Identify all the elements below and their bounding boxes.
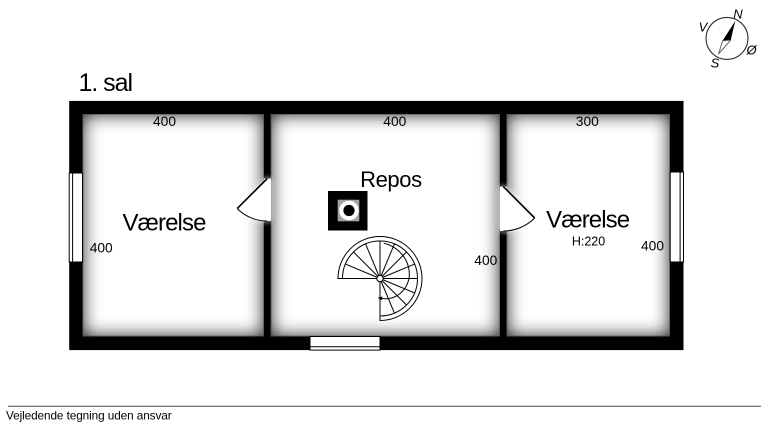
svg-text:400: 400 xyxy=(474,253,497,268)
svg-text:Ø: Ø xyxy=(745,43,757,58)
svg-text:400: 400 xyxy=(153,114,176,129)
svg-text:V: V xyxy=(699,20,709,35)
svg-text:Repos: Repos xyxy=(360,167,422,192)
svg-text:S: S xyxy=(711,56,720,71)
svg-text:400: 400 xyxy=(641,239,664,254)
svg-text:1. sal: 1. sal xyxy=(79,69,132,97)
svg-text:300: 300 xyxy=(576,114,599,129)
svg-text:Værelse: Værelse xyxy=(122,209,206,236)
svg-text:H:220: H:220 xyxy=(572,234,605,248)
svg-text:400: 400 xyxy=(383,114,406,129)
svg-text:400: 400 xyxy=(90,241,113,256)
svg-text:Vejledende tegning uden ansvar: Vejledende tegning uden ansvar xyxy=(6,408,172,422)
svg-text:Værelse: Værelse xyxy=(546,207,630,234)
svg-text:N: N xyxy=(733,7,743,22)
